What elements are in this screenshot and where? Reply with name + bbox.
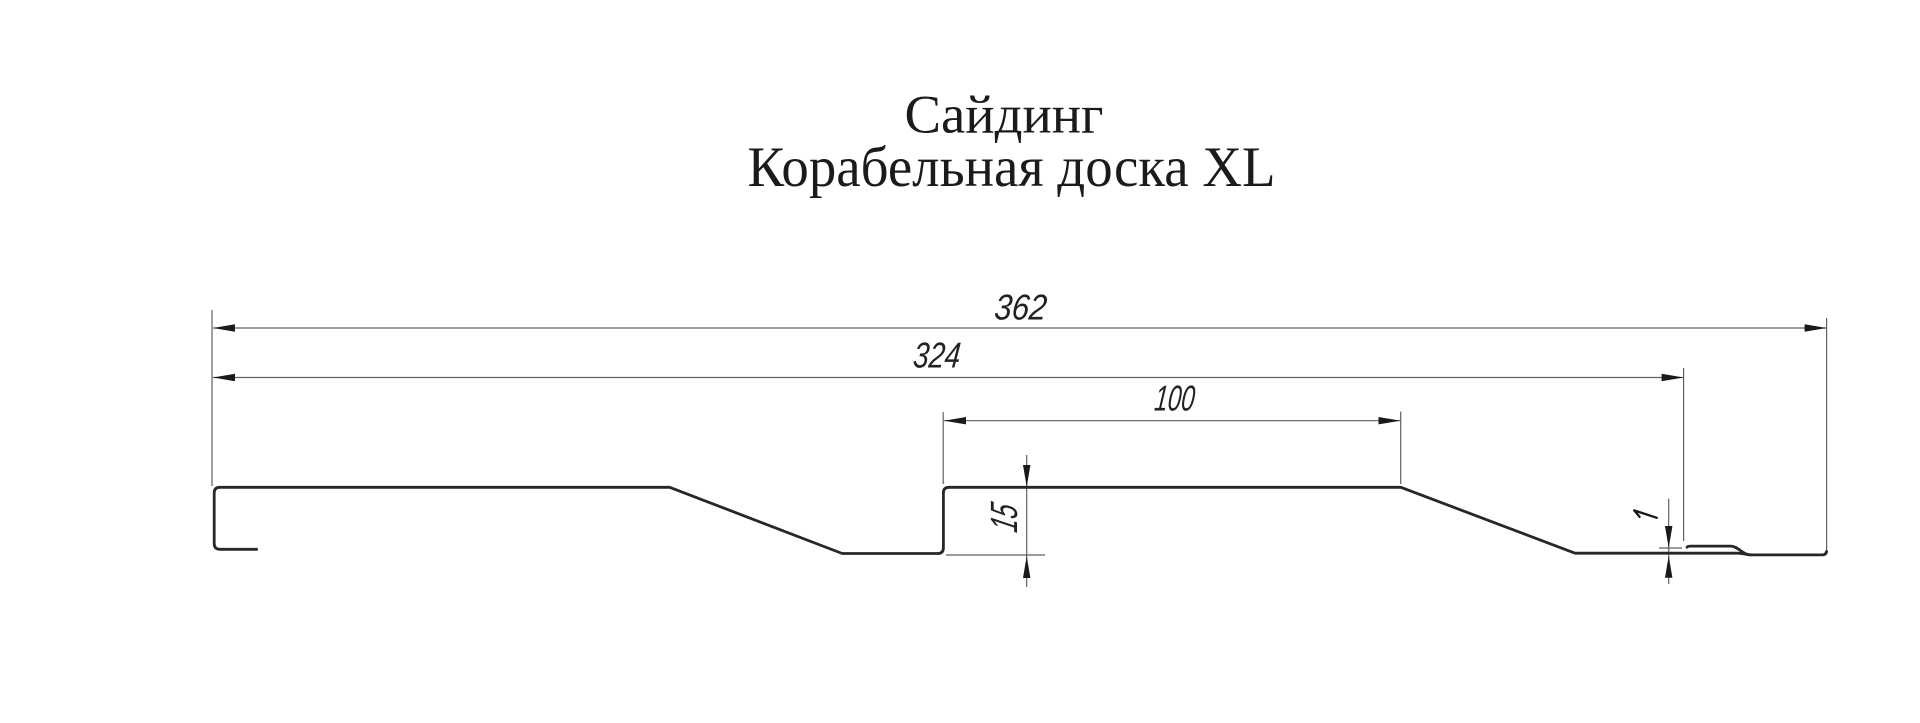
svg-text:Корабельная доска XL: Корабельная доска XL [748, 136, 1276, 199]
svg-text:100: 100 [1153, 378, 1197, 419]
svg-text:362: 362 [993, 287, 1049, 328]
svg-text:324: 324 [911, 335, 962, 376]
